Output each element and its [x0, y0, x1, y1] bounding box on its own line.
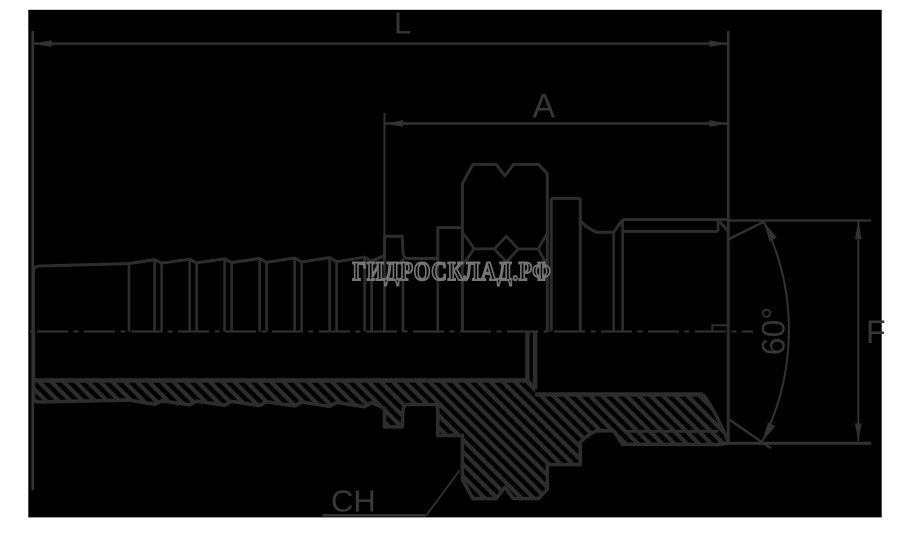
svg-text:60°: 60°	[756, 307, 792, 355]
svg-text:ГИДРОСКЛАД.РФ: ГИДРОСКЛАД.РФ	[353, 257, 552, 286]
svg-text:L: L	[394, 6, 411, 41]
svg-text:A: A	[533, 88, 556, 126]
svg-text:F: F	[866, 314, 886, 350]
svg-text:CH: CH	[331, 484, 376, 519]
